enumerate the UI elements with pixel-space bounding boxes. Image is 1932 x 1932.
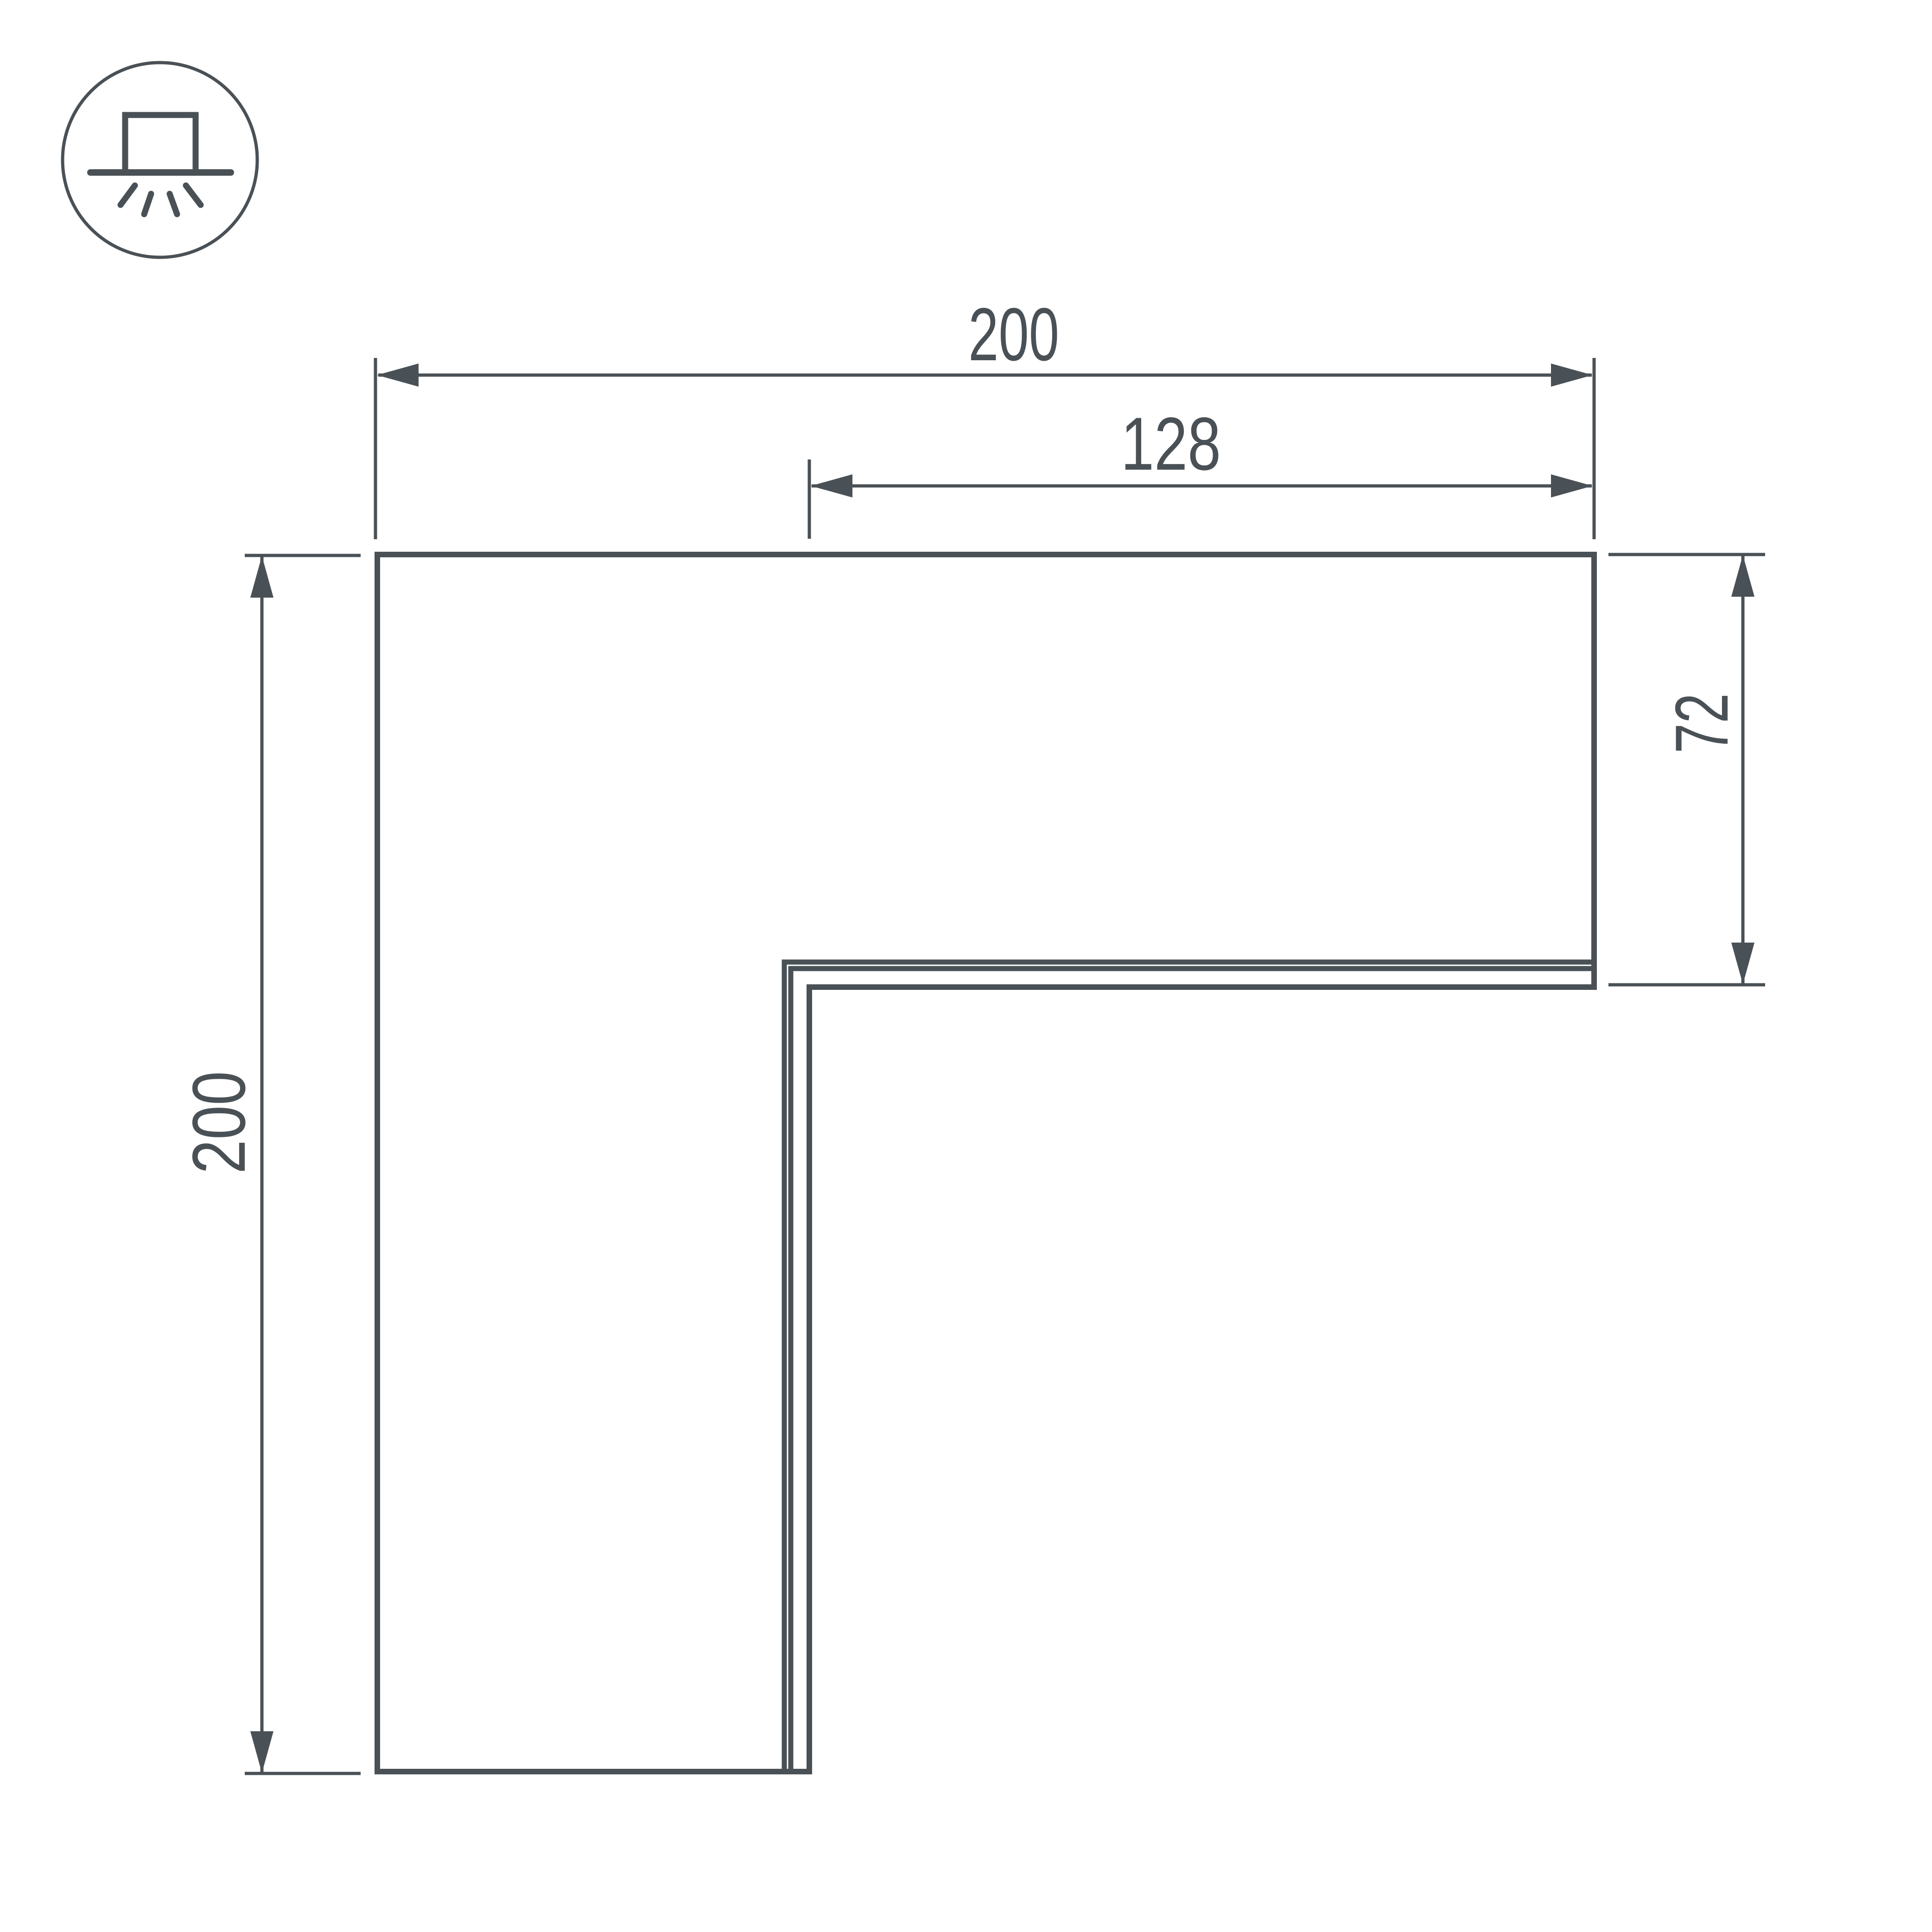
profile-outline [377, 555, 1594, 1772]
arrowhead-right [1551, 363, 1593, 387]
dimension-label-top-width: 200 [968, 293, 1059, 376]
arrowhead-left [377, 363, 419, 387]
arrowhead-right [1551, 474, 1593, 497]
arrowhead-left [811, 474, 852, 497]
dimension-label-left-height: 200 [177, 1071, 261, 1174]
arrowhead-bottom [250, 1731, 273, 1773]
surface-mounted-light-icon [63, 63, 257, 257]
dimension-label-inner-width: 128 [1121, 402, 1221, 486]
arrowhead-top [250, 556, 273, 598]
profile-body [377, 555, 1594, 1772]
arrowhead-bottom [1731, 943, 1754, 984]
profile-seam-line-inner [791, 969, 1591, 1769]
arrowhead-top [1731, 555, 1754, 597]
dimension-inner-width: 128 [809, 402, 1593, 539]
icon-light-rays [121, 185, 201, 214]
dimension-arm-height: 72 [1608, 555, 1765, 985]
dimension-label-arm-height: 72 [1660, 693, 1744, 753]
profile-seam-line-outer [784, 962, 1591, 1769]
icon-fixture-body [125, 115, 196, 172]
dimension-left-height: 200 [177, 555, 361, 1773]
dimension-top-width: 200 [375, 293, 1594, 539]
dimension-drawing: 200 128 72 200 [0, 0, 1932, 1932]
icon-circle [63, 63, 257, 257]
